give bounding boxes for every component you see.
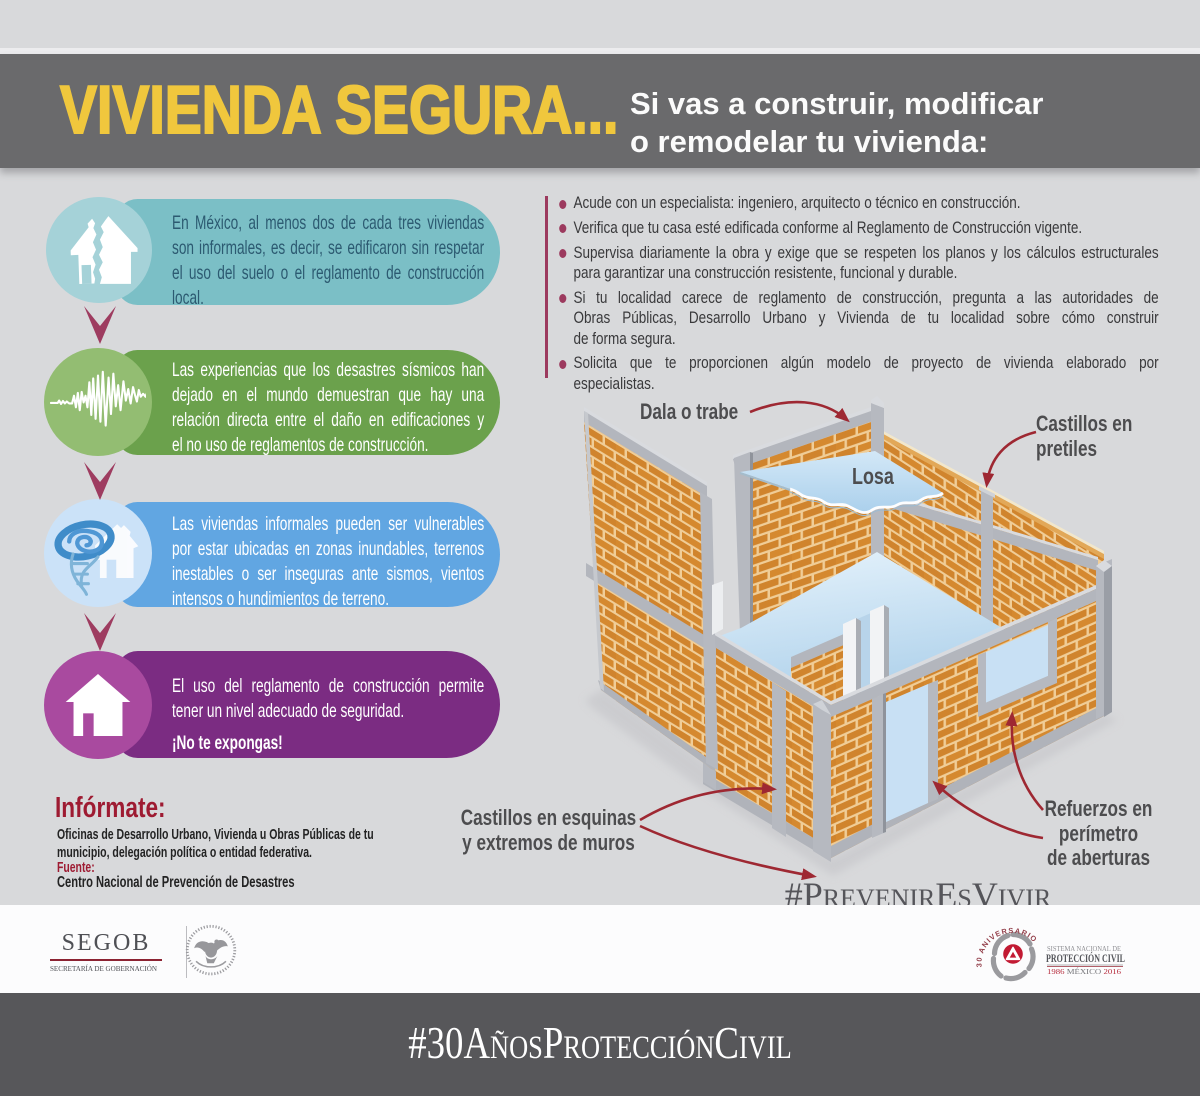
svg-text:SISTEMA NACIONAL DE: SISTEMA NACIONAL DE <box>1047 944 1121 953</box>
svg-text:1986 MÉXICO 2016: 1986 MÉXICO 2016 <box>1047 966 1121 976</box>
svg-text:PROTECCIÓN CIVIL: PROTECCIÓN CIVIL <box>1046 953 1125 965</box>
